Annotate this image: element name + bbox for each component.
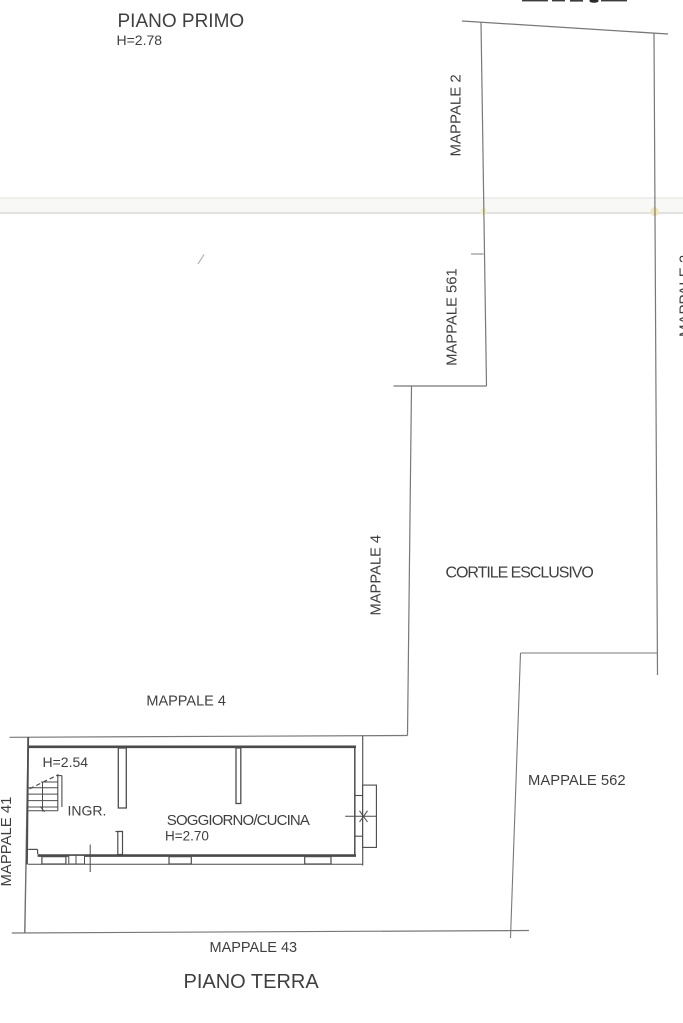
svg-text:MAPPALE 562: MAPPALE 562 xyxy=(528,773,626,789)
svg-text:SOGGIORNO/CUCINA: SOGGIORNO/CUCINA xyxy=(167,812,310,829)
svg-text:CORTILE ESCLUSIVO: CORTILE ESCLUSIVO xyxy=(446,565,594,582)
svg-text:MAPPALE 4: MAPPALE 4 xyxy=(146,694,226,710)
svg-text:MAPPALE 2: MAPPALE 2 xyxy=(448,74,465,156)
svg-text:MAPPALE 2: MAPPALE 2 xyxy=(677,255,683,337)
svg-text:MAPPALE 43: MAPPALE 43 xyxy=(210,940,298,956)
svg-text:H=2.54: H=2.54 xyxy=(43,754,89,770)
svg-text:MAPPALE 4: MAPPALE 4 xyxy=(369,535,385,616)
svg-text:MAPPALE 41: MAPPALE 41 xyxy=(0,797,15,887)
svg-text:PIANO PRIMO: PIANO PRIMO xyxy=(118,11,245,32)
svg-text:PIANO TERRA: PIANO TERRA xyxy=(184,971,320,993)
svg-text:INGR.: INGR. xyxy=(68,803,107,819)
svg-text:H=2.70: H=2.70 xyxy=(165,829,209,844)
svg-text:MAPPALE 561: MAPPALE 561 xyxy=(444,268,460,366)
svg-text:H=2.78: H=2.78 xyxy=(117,32,163,48)
